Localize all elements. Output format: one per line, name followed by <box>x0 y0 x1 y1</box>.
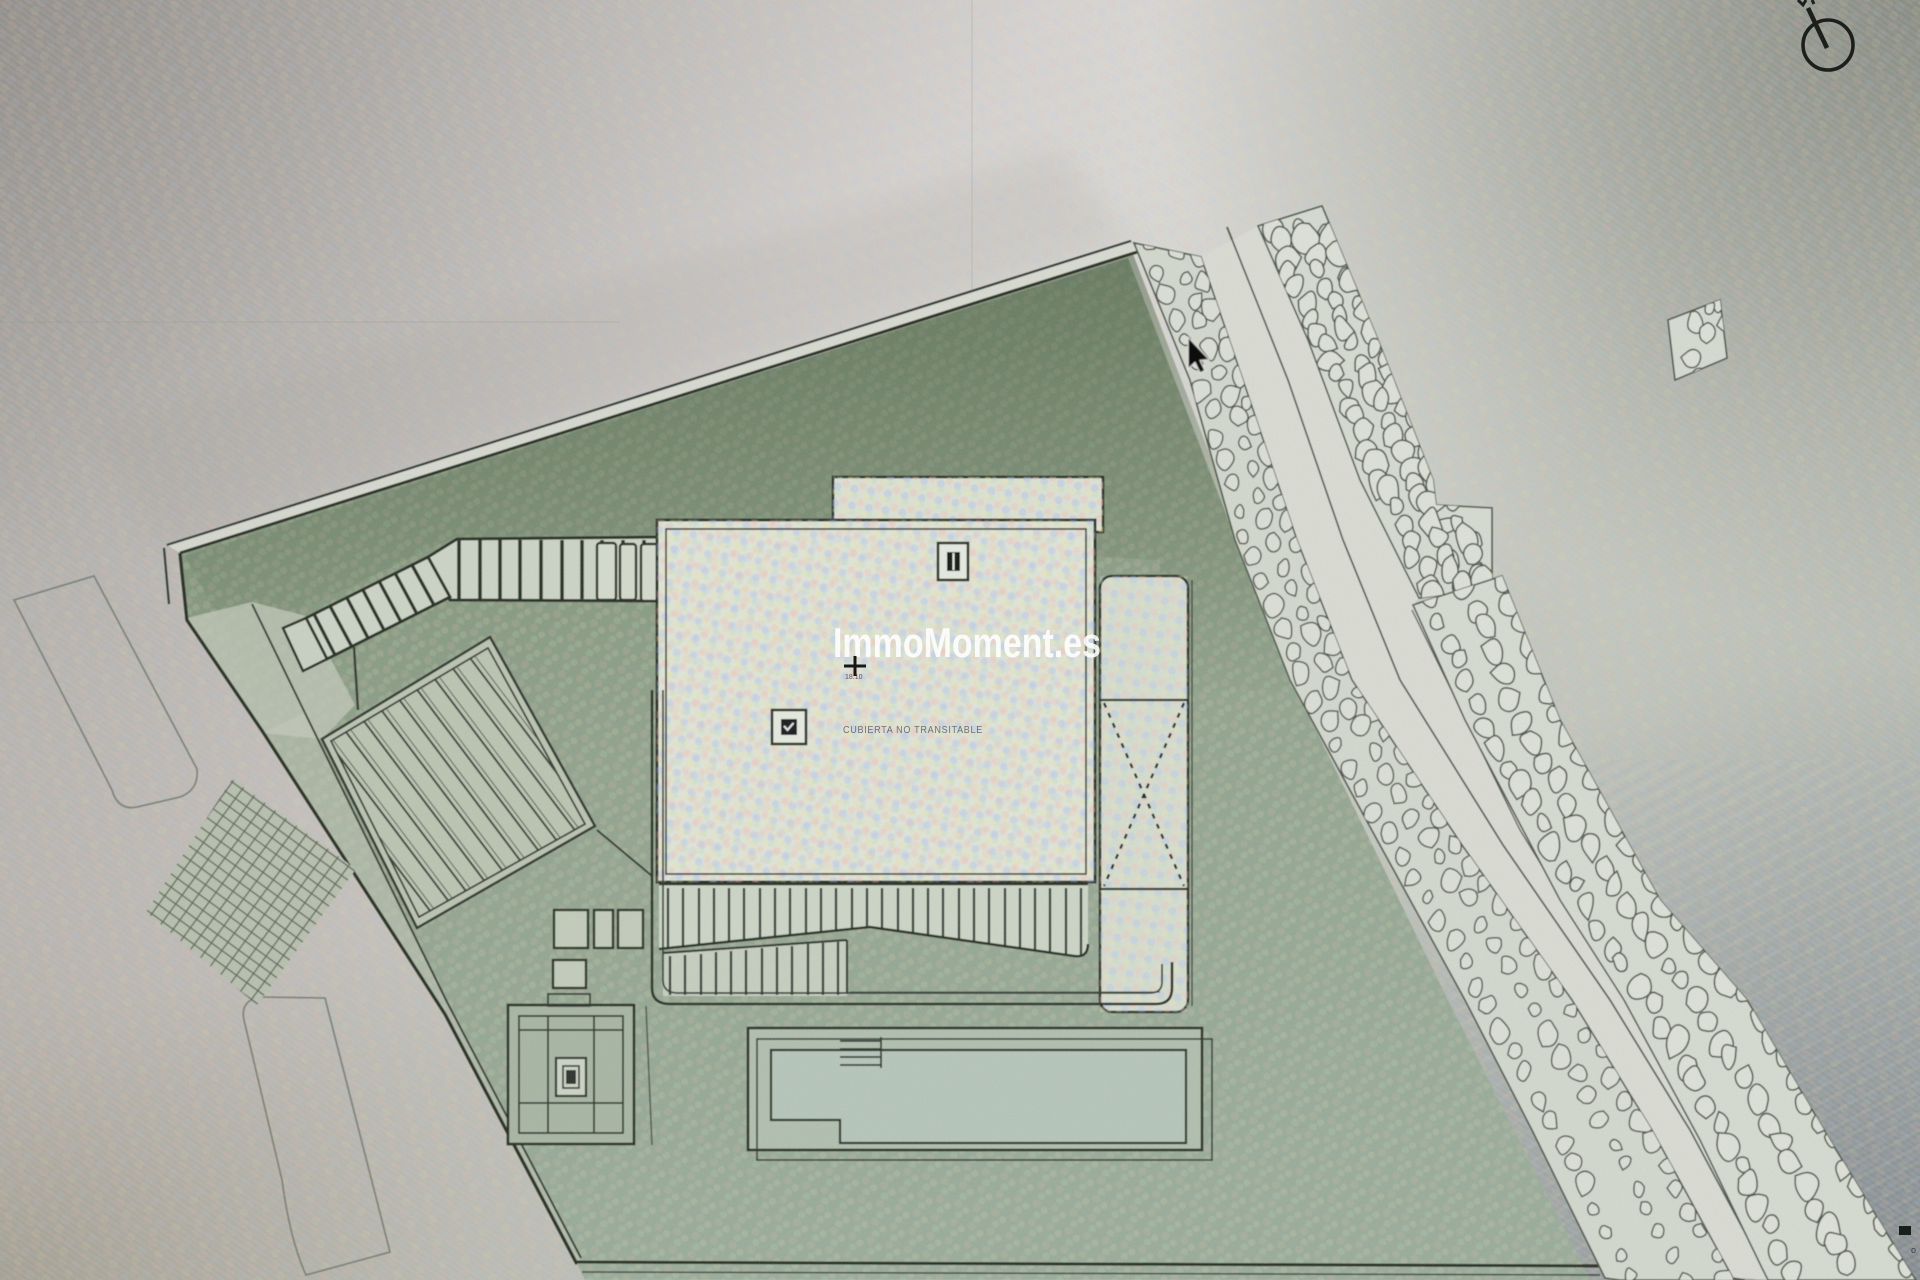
svg-text:o: o <box>1911 1245 1916 1255</box>
svg-text:ImmoMoment.es: ImmoMoment.es <box>833 619 1101 666</box>
svg-text:CUBIERTA NO TRANSITABLE: CUBIERTA NO TRANSITABLE <box>843 724 983 736</box>
svg-text:18.10: 18.10 <box>845 674 863 681</box>
